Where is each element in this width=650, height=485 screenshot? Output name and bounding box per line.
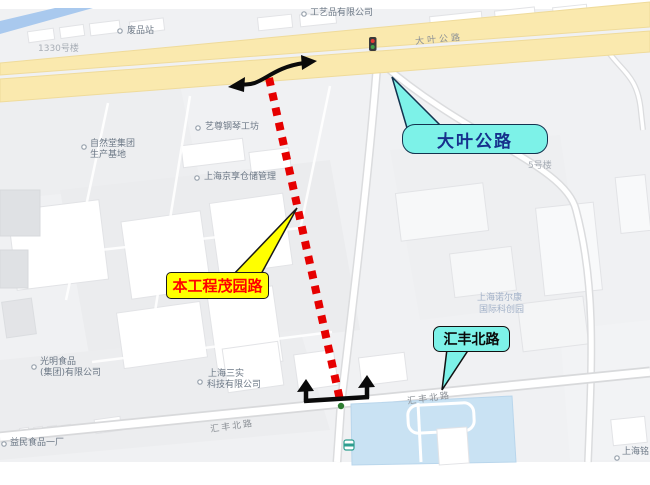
poi-guangming-line1: 光明食品 <box>40 357 76 368</box>
poi-nek-line1: 上海诺尔康 <box>477 293 522 304</box>
huifeng-callout-tail <box>442 349 469 390</box>
poi-yimin: 益民食品一厂 <box>10 438 64 449</box>
poi-sanshi-line2: 科技有限公司 <box>207 380 261 391</box>
signal-dot <box>338 403 344 409</box>
traffic-light-icon <box>369 37 377 51</box>
poi-jingxiang: 上海京享仓储管理 <box>204 172 276 183</box>
poi-ziran-line2: 生产基地 <box>90 150 126 161</box>
poi-sanshi-line1: 上海三实 <box>208 369 244 380</box>
map-geometry <box>0 0 650 485</box>
project-road-callout: 本工程茂园路 <box>166 272 269 299</box>
poi-guangming-line2: (集团)有限公司 <box>40 368 101 379</box>
poi-feipinzhan: 废品站 <box>127 26 154 37</box>
daye-road-callout: 大叶公路 <box>402 124 548 154</box>
poi-ziran-line1: 自然堂集团 <box>90 139 135 150</box>
pond <box>351 396 516 465</box>
poi-shanghaiming: 上海铭 <box>622 447 649 458</box>
poi-gongyipin: 工艺品有限公司 <box>310 8 373 19</box>
poi-yizun: 艺尊钢琴工坊 <box>205 122 259 133</box>
map-canvas: 大叶公路 汇丰北路 汇丰北路 工艺品有限公司 废品站 1330号楼 自然堂集团 … <box>0 0 650 485</box>
huifeng-road-callout: 汇丰北路 <box>433 326 510 352</box>
transit-icon <box>344 440 354 450</box>
poi-bldg5: 5号楼 <box>528 161 552 172</box>
poi-nek-line2: 国际科创园 <box>479 305 524 316</box>
poi-bldg1330: 1330号楼 <box>38 44 79 55</box>
